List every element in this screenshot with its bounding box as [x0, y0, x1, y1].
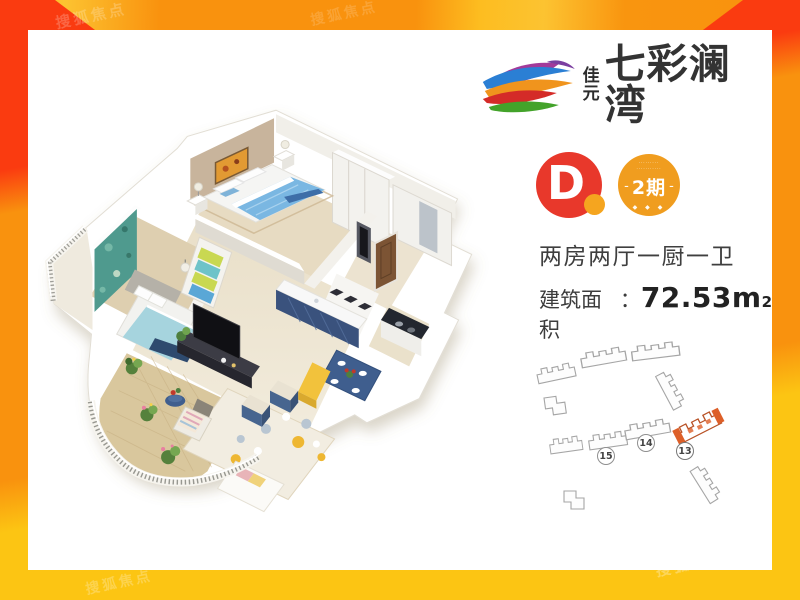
building-number-15: 15: [599, 451, 612, 462]
area-colon: ：: [620, 284, 641, 314]
brand-prefix-bottom: 元: [583, 85, 600, 103]
phase-bottom-dots: ◆ ◆ ◆: [633, 204, 666, 211]
promo-card: 佳 元 七彩澜湾 D ········· ··········· - 2期 - …: [28, 30, 772, 570]
phase-dash-left: -: [624, 179, 629, 194]
site-building: [580, 346, 627, 368]
floor-plan-render: [34, 96, 508, 550]
site-building-13-highlighted: [672, 408, 724, 445]
site-building: [656, 370, 686, 410]
unit-badge-dot: [584, 194, 605, 215]
brand-prefix-top: 佳: [583, 67, 600, 85]
site-map: 15 14 13: [516, 336, 768, 532]
fridge-panel: [419, 201, 437, 253]
unit-specs: 两房两厅一厨一卫 建筑面积 ： 72.53m 2: [539, 237, 772, 344]
entry-door: [375, 232, 397, 290]
area-label: 建筑面积: [539, 284, 620, 344]
layout-text: 两房两厅一厨一卫: [539, 237, 772, 271]
site-building: [690, 464, 722, 504]
area-text: 建筑面积 ： 72.53m 2: [539, 281, 772, 344]
site-building: [549, 436, 583, 454]
site-building-15: [588, 431, 628, 450]
phase-dash-right: -: [669, 179, 674, 194]
brand-logo: 佳 元 七彩澜湾: [478, 44, 772, 126]
building-number-13: 13: [678, 446, 691, 457]
brand-name: 七彩澜湾: [605, 44, 772, 126]
border-top-stripe: [0, 0, 800, 30]
site-building: [544, 395, 566, 416]
site-building: [536, 362, 576, 384]
badges-row: D ········· ··········· - 2期 - ◆ ◆ ◆: [536, 152, 680, 218]
building-number-14: 14: [639, 438, 653, 449]
watermark-text: 搜狐焦点: [84, 565, 155, 599]
site-building: [564, 491, 584, 509]
site-building: [631, 341, 680, 361]
phase-deco-dots: ···········: [637, 166, 662, 172]
area-value: 72.53m: [641, 281, 762, 314]
brand-prefix: 佳 元: [583, 67, 600, 104]
unit-badge: D: [536, 152, 602, 218]
phase-label: 2期: [632, 173, 666, 200]
phase-badge: ········· ··········· - 2期 - ◆ ◆ ◆: [618, 154, 680, 216]
